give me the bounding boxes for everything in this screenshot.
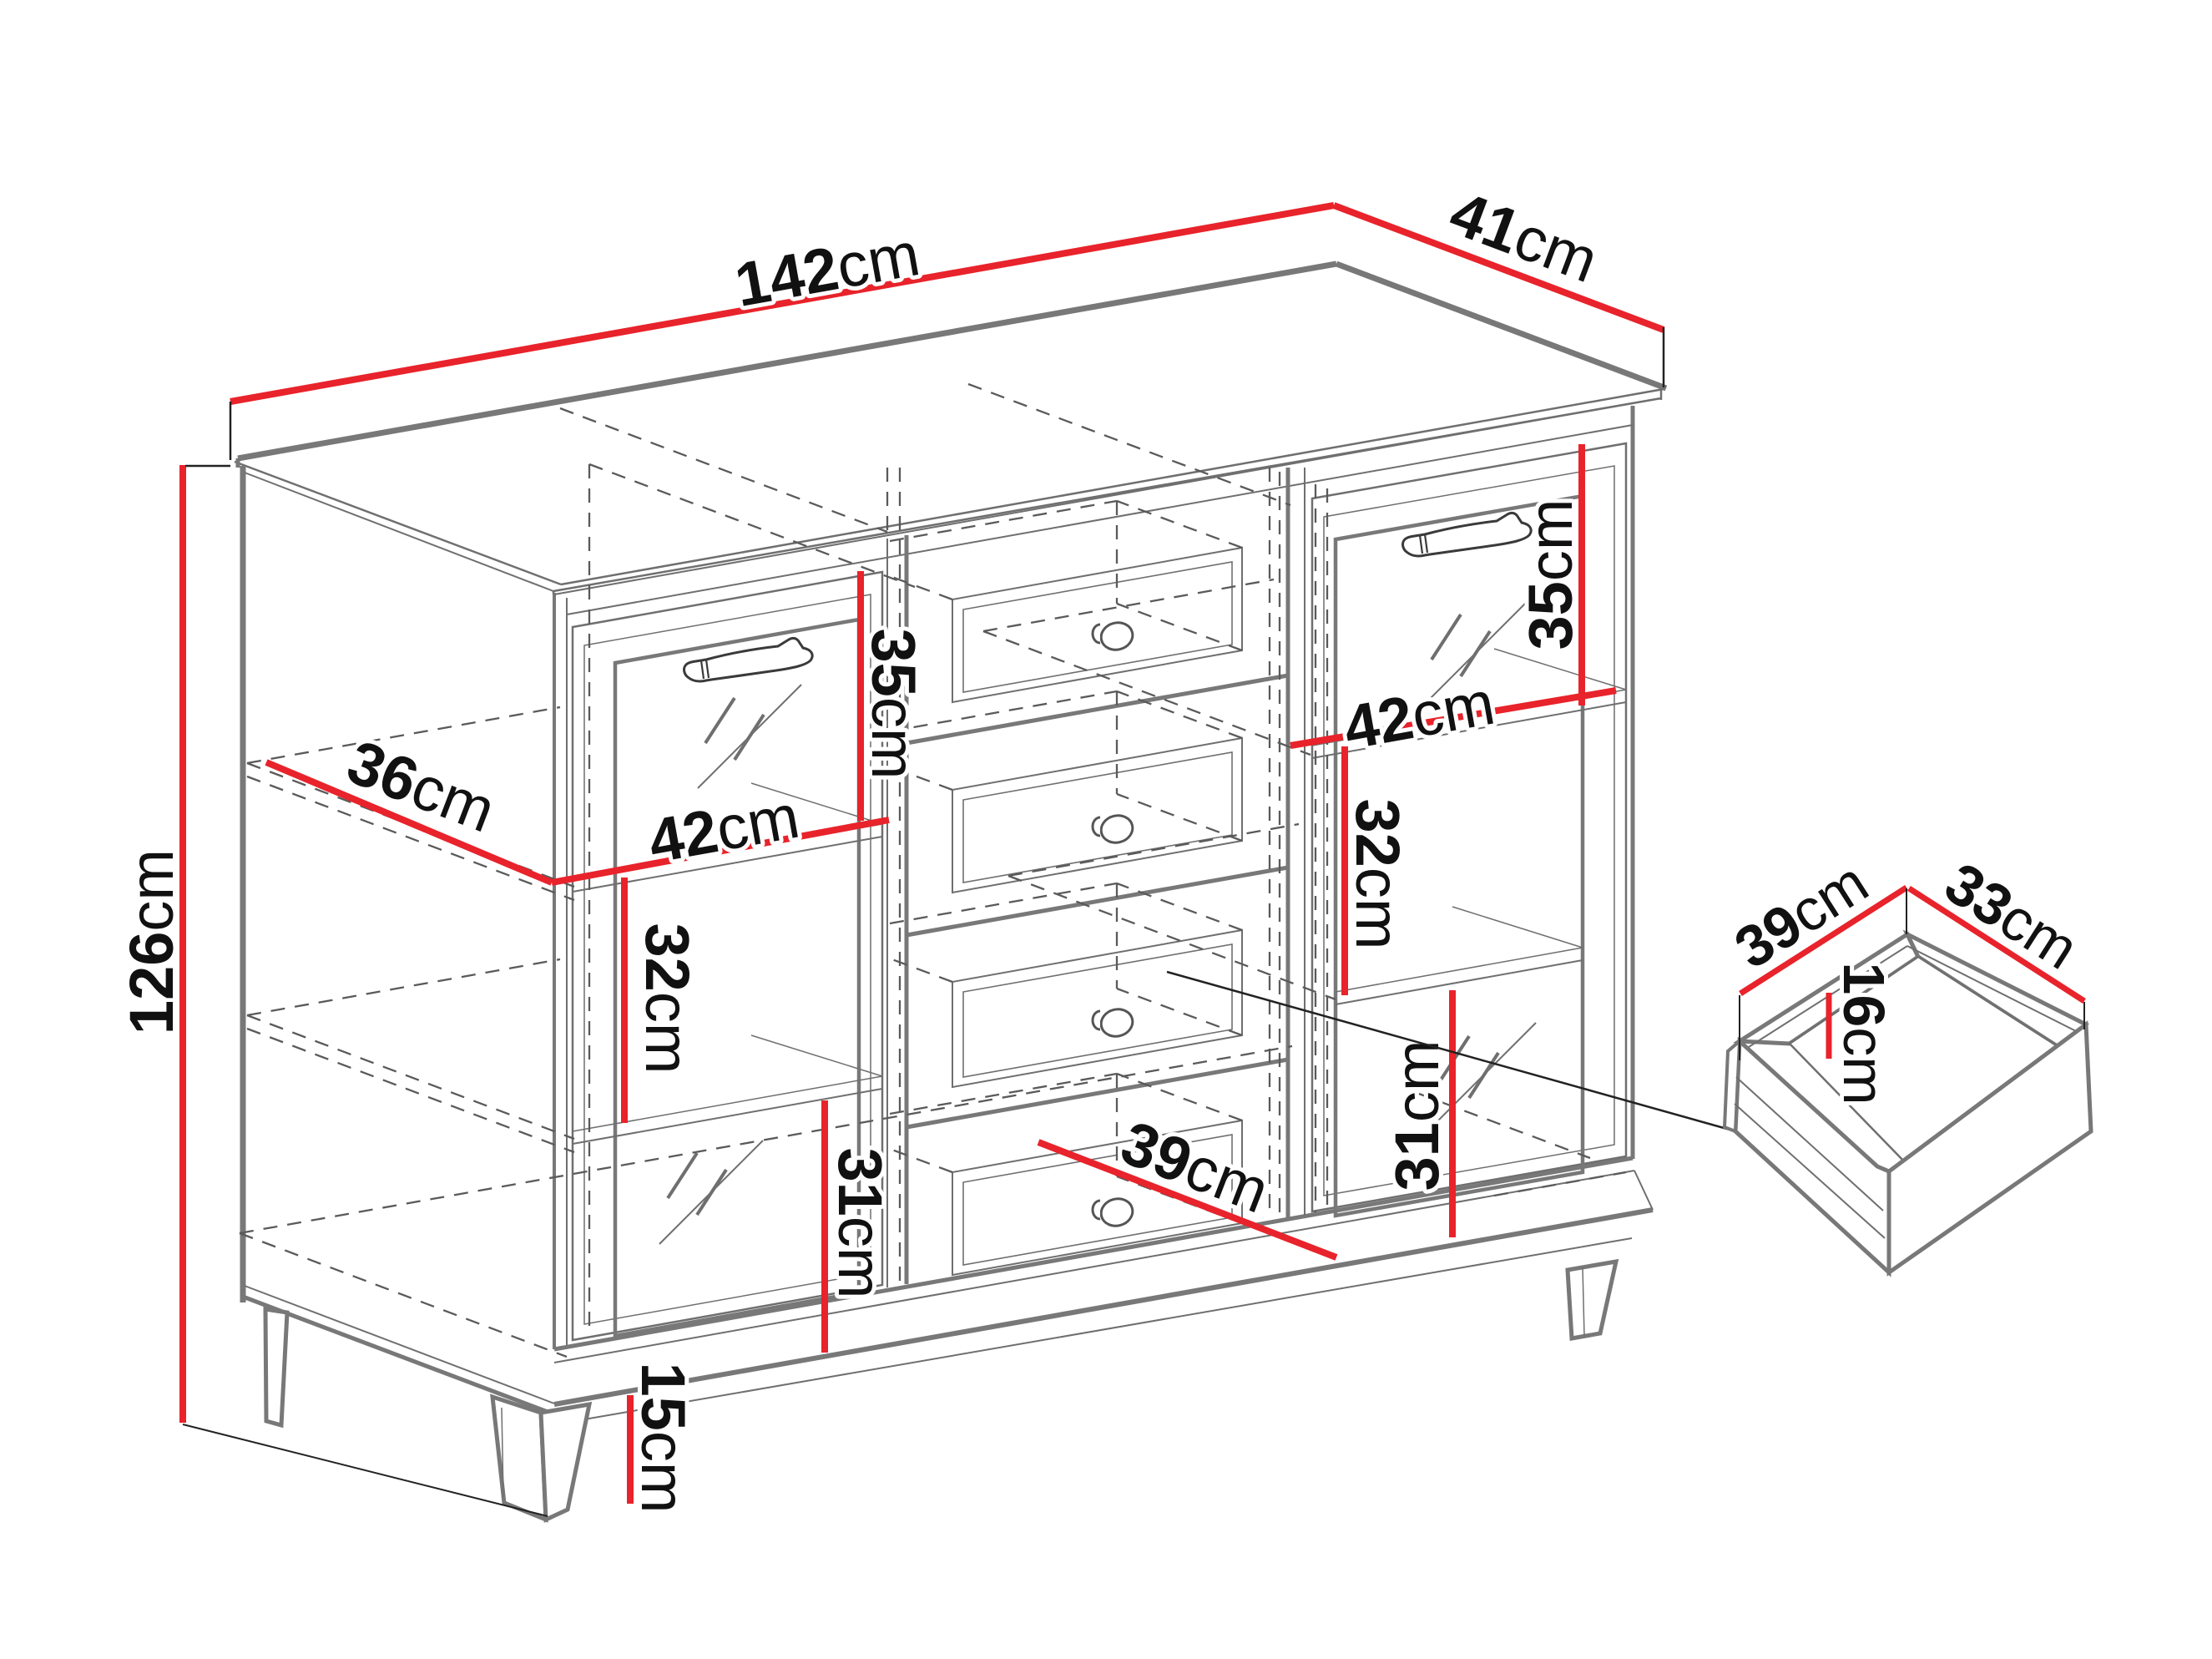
svg-text:15cm: 15cm [629, 1363, 699, 1514]
svg-text:126cm: 126cm [117, 849, 186, 1034]
svg-text:16cm: 16cm [1831, 962, 1896, 1105]
svg-text:31cm: 31cm [1382, 1040, 1452, 1191]
svg-text:35cm: 35cm [860, 629, 929, 780]
svg-text:32cm: 32cm [634, 923, 703, 1075]
svg-text:31cm: 31cm [826, 1148, 896, 1299]
svg-text:35cm: 35cm [1516, 499, 1585, 650]
svg-text:32cm: 32cm [1344, 799, 1413, 950]
